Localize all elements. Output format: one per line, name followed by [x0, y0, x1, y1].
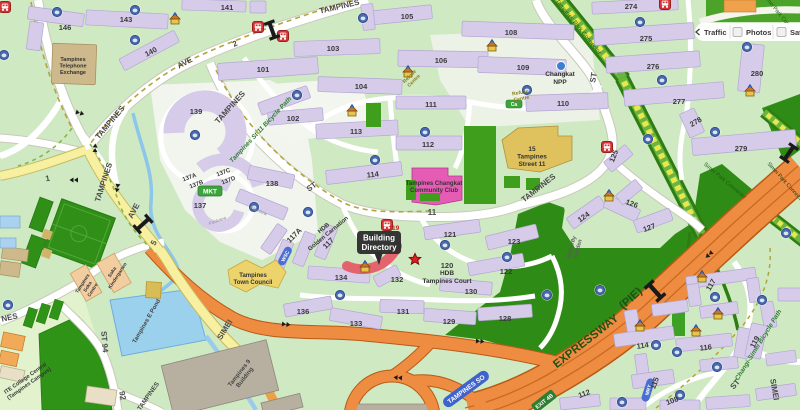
svg-text:105: 105 — [401, 12, 414, 21]
svg-text:113: 113 — [350, 127, 362, 136]
svg-text:130: 130 — [465, 287, 478, 296]
svg-text:276: 276 — [647, 62, 660, 71]
svg-text:122: 122 — [500, 267, 513, 276]
svg-text:121: 121 — [444, 230, 457, 239]
svg-text:123: 123 — [508, 237, 521, 246]
svg-text:MKT: MKT — [203, 189, 217, 196]
svg-text:138: 138 — [266, 179, 279, 188]
svg-text:Changkat: Changkat — [545, 71, 575, 78]
svg-text:141: 141 — [221, 3, 234, 12]
svg-text:Traffic: Traffic — [704, 28, 727, 37]
svg-text:116: 116 — [699, 342, 712, 352]
svg-text:Exchange: Exchange — [60, 70, 86, 76]
svg-text:Tampines: Tampines — [517, 154, 547, 161]
svg-text:104: 104 — [355, 82, 368, 91]
svg-text:143: 143 — [120, 15, 133, 24]
svg-text:Sat: Sat — [790, 28, 800, 37]
svg-text:Building: Building — [363, 234, 395, 243]
svg-text:139: 139 — [190, 107, 203, 116]
svg-text:119: 119 — [389, 225, 400, 232]
svg-text:101: 101 — [257, 65, 270, 74]
svg-text:120: 120 — [441, 261, 454, 270]
svg-text:15: 15 — [528, 146, 536, 153]
svg-text:108: 108 — [505, 28, 518, 37]
svg-text:11: 11 — [428, 208, 437, 217]
svg-text:277: 277 — [673, 97, 686, 106]
svg-text:103: 103 — [327, 44, 340, 53]
svg-text:109: 109 — [517, 63, 530, 72]
svg-text:Directory: Directory — [361, 243, 397, 252]
svg-text:114: 114 — [636, 340, 650, 351]
svg-text:Tampines: Tampines — [239, 273, 267, 279]
svg-text:Telephone: Telephone — [59, 64, 86, 70]
svg-text:ST 94: ST 94 — [99, 331, 110, 354]
svg-text:Tampines Court: Tampines Court — [423, 278, 473, 285]
svg-text:280: 280 — [751, 69, 764, 78]
svg-text:275: 275 — [640, 34, 653, 43]
svg-text:Community Club: Community Club — [410, 188, 458, 194]
svg-text:136: 136 — [297, 307, 310, 316]
svg-text:137: 137 — [194, 201, 207, 210]
svg-text:129: 129 — [443, 317, 456, 326]
svg-text:131: 131 — [397, 307, 410, 316]
svg-text:134: 134 — [335, 273, 348, 282]
svg-text:133: 133 — [350, 319, 363, 328]
svg-text:128: 128 — [499, 314, 512, 323]
svg-text:Photos: Photos — [746, 28, 771, 37]
svg-text:110: 110 — [557, 99, 569, 108]
svg-text:ST: ST — [588, 72, 599, 84]
svg-text:114: 114 — [366, 169, 380, 179]
svg-text:146: 146 — [59, 23, 72, 32]
svg-text:106: 106 — [435, 56, 448, 65]
svg-text:111: 111 — [425, 100, 437, 109]
svg-text:Street 11: Street 11 — [518, 161, 545, 168]
svg-text:Tampines: Tampines — [60, 57, 85, 63]
svg-text:Town Council: Town Council — [234, 280, 273, 286]
svg-text:279: 279 — [735, 144, 748, 153]
svg-text:274: 274 — [625, 2, 638, 11]
svg-text:102: 102 — [287, 114, 300, 123]
svg-text:112: 112 — [422, 140, 434, 149]
svg-text:NPP: NPP — [553, 79, 567, 86]
svg-text:132: 132 — [391, 275, 404, 284]
svg-text:HDB: HDB — [440, 270, 454, 277]
svg-text:Tampines Changkat: Tampines Changkat — [406, 181, 463, 187]
